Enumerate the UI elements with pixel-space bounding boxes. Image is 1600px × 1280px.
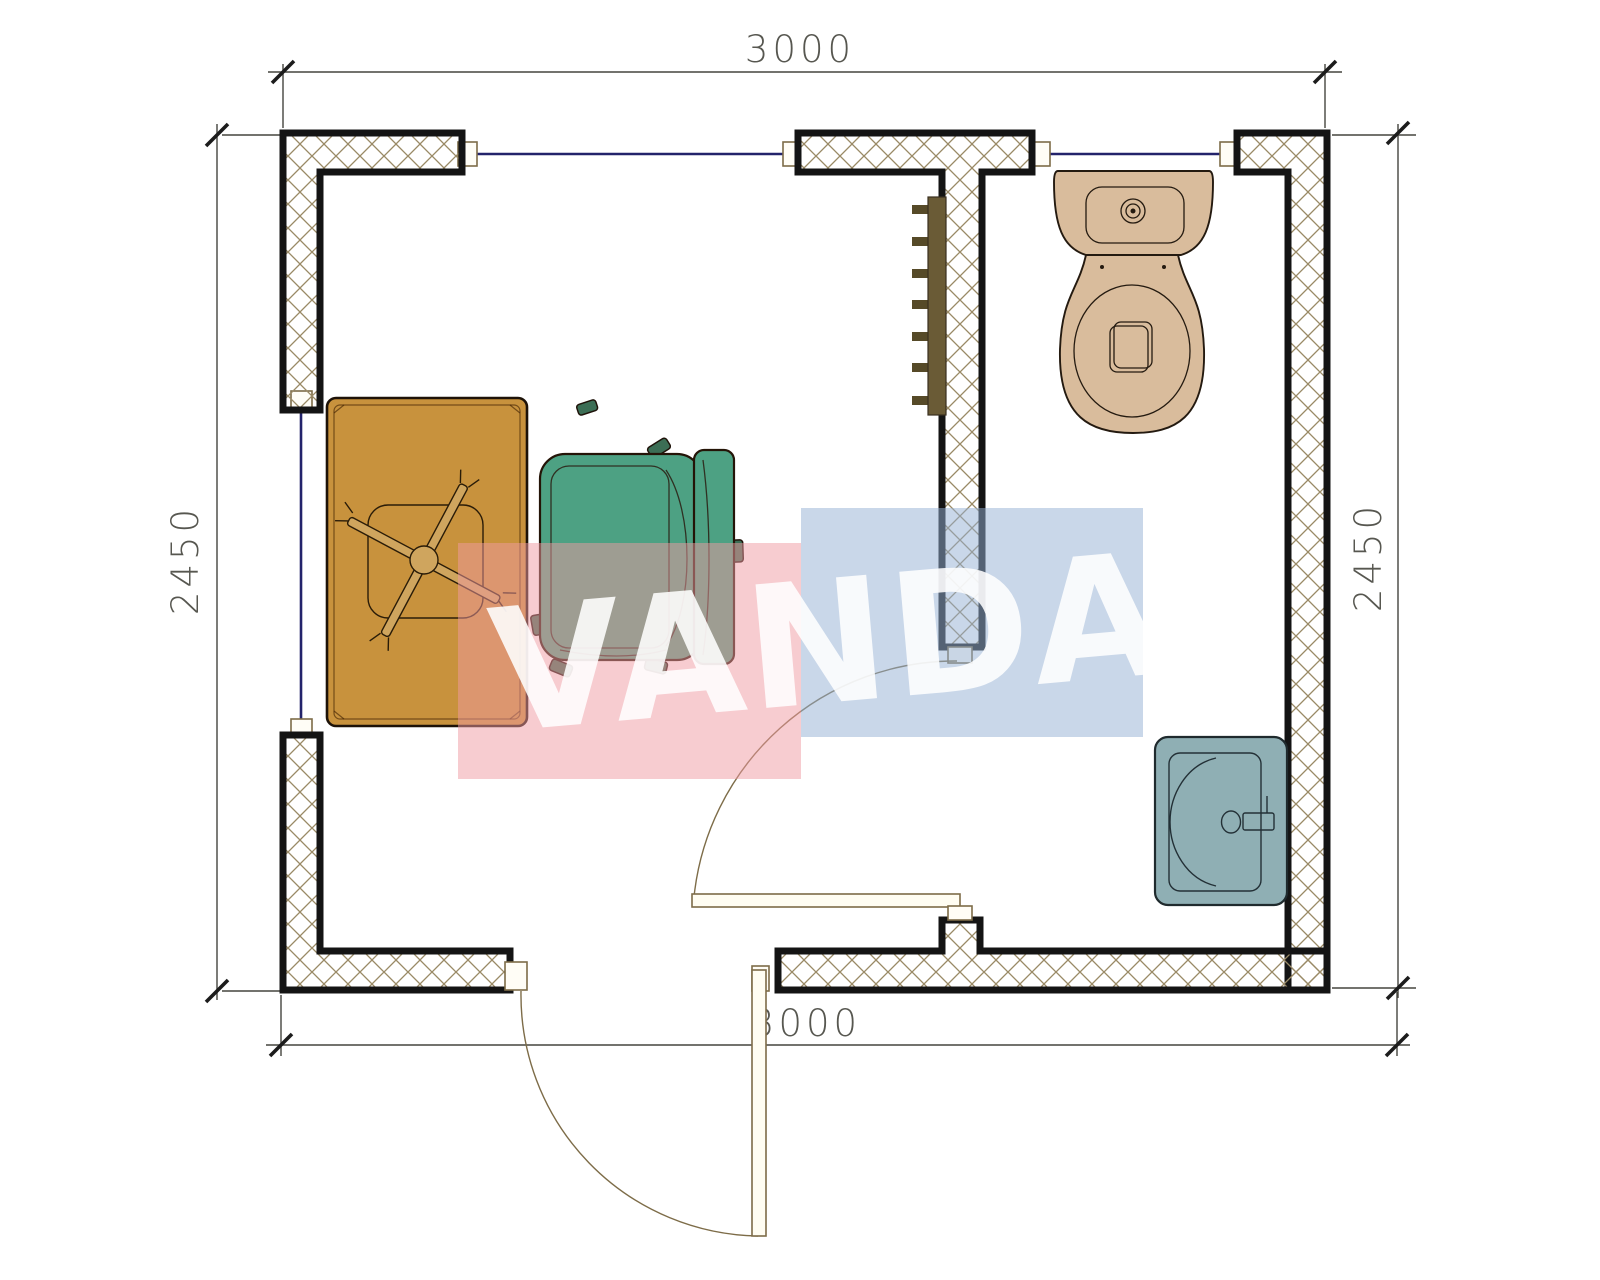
dimension-top: 3000 (268, 28, 1342, 128)
floor-plan-canvas: 3000 3000 2450 2450 (0, 0, 1600, 1280)
dim-right-label: 2450 (1347, 502, 1390, 612)
radiator (912, 197, 946, 415)
entrance-door (505, 962, 769, 1236)
wall-bottom-right (778, 920, 1327, 990)
wc-door-leaf (692, 894, 960, 907)
entrance-door-leaf (752, 970, 766, 1236)
dimension-bottom: 3000 (266, 992, 1410, 1056)
watermark: VANDA (458, 508, 1174, 779)
dimension-right: 2450 (1332, 122, 1416, 999)
wall-top-left (283, 133, 462, 410)
dim-left-label: 2450 (164, 505, 207, 615)
dim-top-label: 3000 (745, 28, 855, 71)
dim-bottom-label: 3000 (751, 1002, 861, 1045)
floor-plan-drawing: 3000 3000 2450 2450 (0, 0, 1600, 1280)
entrance-door-swing-arc (521, 991, 758, 1236)
dimension-left: 2450 (164, 124, 280, 1002)
sink (1155, 737, 1287, 905)
toilet-bowl (1060, 255, 1204, 433)
toilet (1054, 171, 1213, 433)
